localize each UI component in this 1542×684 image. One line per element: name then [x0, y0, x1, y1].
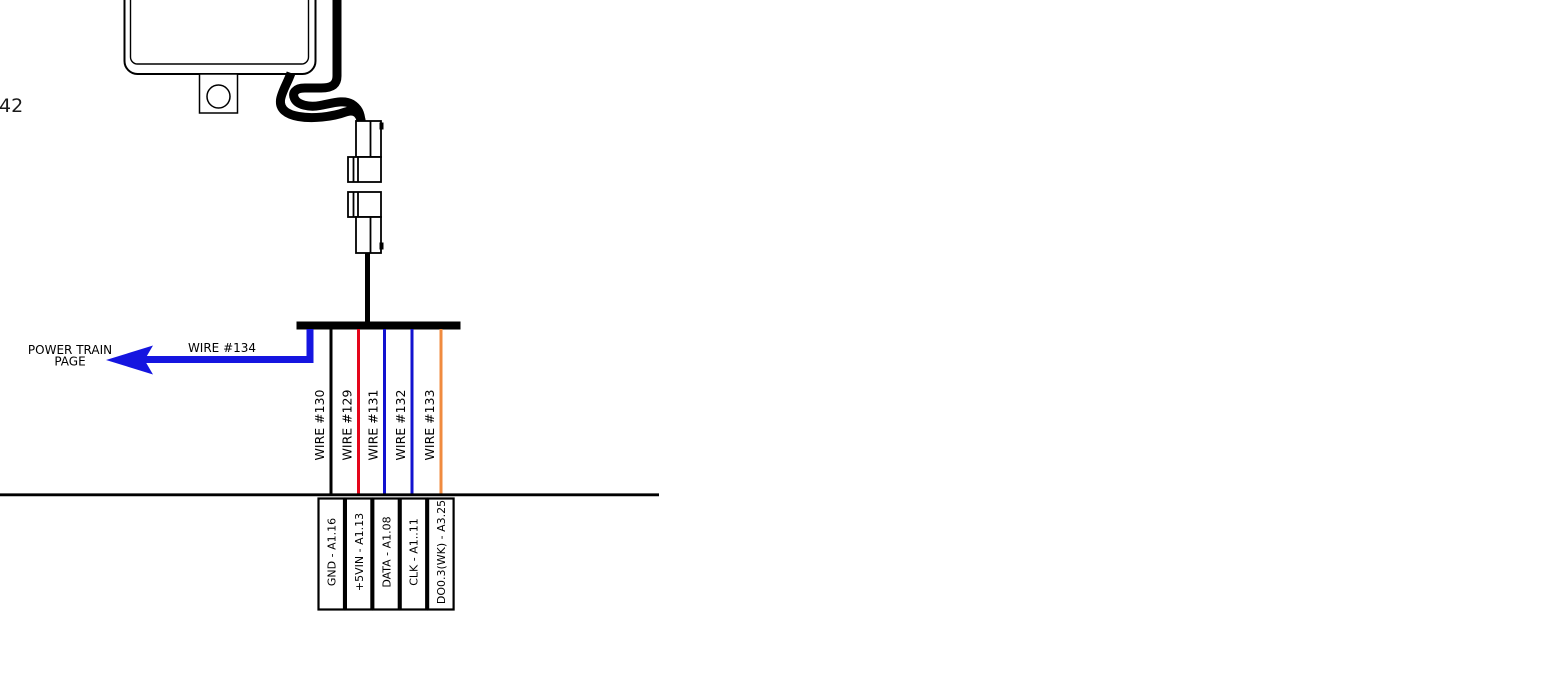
- sheet-ref-number: 42: [0, 95, 23, 117]
- ecu-module-inner-seam: [131, 0, 309, 64]
- off-page-target-line2[interactable]: PAGE: [54, 355, 85, 369]
- connector-latch-bottom: [380, 243, 384, 250]
- wire-129-label: WIRE #129: [340, 389, 355, 460]
- wire-132-label: WIRE #132: [393, 390, 408, 461]
- pin-label-do03: DO0.3(WK) - A3.25: [435, 500, 448, 604]
- wire-130-label: WIRE #130: [312, 389, 327, 460]
- wire-133-label: WIRE #133: [422, 390, 437, 461]
- pin-label-data: DATA - A1.08: [380, 516, 393, 587]
- off-page-reference[interactable]: WIRE #134 POWER TRAIN PAGE: [28, 329, 314, 375]
- mounting-hole: [207, 85, 230, 108]
- wire-134-horizontal-segment[interactable]: [143, 356, 314, 363]
- wiring-diagram: 42 WIRE #130 WIR: [0, 0, 1542, 684]
- ecu-module: [125, 0, 316, 113]
- wire-131-label: WIRE #131: [366, 390, 381, 461]
- inline-connector: [348, 121, 384, 253]
- pin-label-5vin: +5VIN - A1.13: [353, 513, 366, 591]
- splice-bus-bar: [297, 322, 461, 330]
- wire-134-label: WIRE #134: [188, 341, 256, 355]
- pin-label-gnd: GND - A1.16: [326, 518, 339, 586]
- connector-latch-top: [380, 123, 384, 130]
- connector-female-housing: [356, 217, 381, 253]
- pin-label-clk: CLK - A1..11: [408, 518, 421, 586]
- connector-male-housing: [356, 121, 381, 157]
